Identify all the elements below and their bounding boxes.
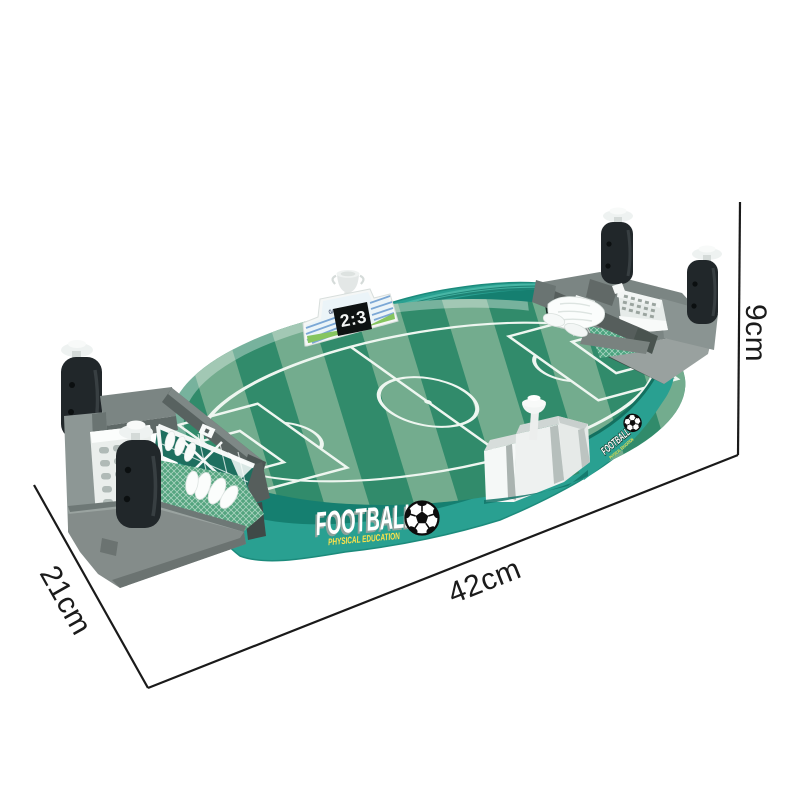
svg-text:9cm: 9cm bbox=[739, 304, 772, 362]
